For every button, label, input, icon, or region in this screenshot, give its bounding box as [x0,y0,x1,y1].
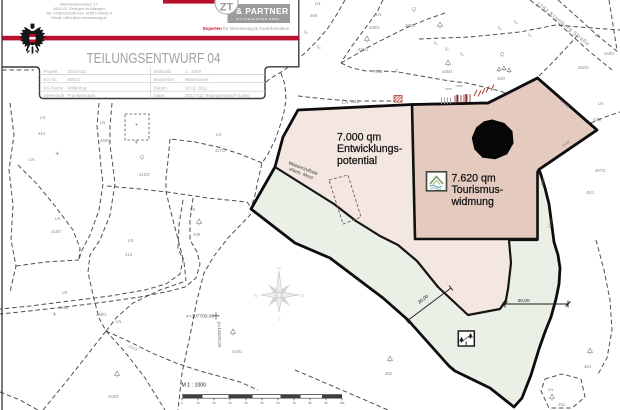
svg-text:W: W [253,293,258,298]
svg-text:N: N [277,266,280,271]
svg-text:60: 60 [276,401,280,405]
svg-text:448/2: 448/2 [100,138,111,143]
svg-text:LN: LN [116,319,121,324]
svg-text:LN: LN [62,290,67,295]
svg-text:KG Nr.: KG Nr. [44,77,58,82]
svg-text:443/1: 443/1 [232,349,243,354]
svg-text:potential: potential [337,155,377,167]
svg-text:LN: LN [595,33,600,38]
svg-text:Frankenmarkt: Frankenmarkt [68,93,97,98]
svg-text:445/2: 445/2 [358,47,369,52]
svg-text:452: 452 [385,371,393,376]
svg-text:418/7: 418/7 [51,229,62,234]
svg-text:452/3: 452/3 [578,65,589,70]
svg-text:468/4: 468/4 [405,23,416,28]
svg-text:ZT: ZT [220,2,234,14]
svg-text:ZIVILTECHNIKER GMBH: ZIVILTECHNIKER GMBH [236,17,280,21]
svg-text:1 : 1000: 1 : 1000 [185,69,202,74]
svg-text:y=12100,00: y=12100,00 [216,321,222,348]
svg-text:LN: LN [598,101,603,106]
svg-text:Datei: Datei [154,93,165,98]
svg-text:445/4: 445/4 [442,69,453,74]
svg-text:452: 452 [558,402,566,407]
svg-text:7.000 qm: 7.000 qm [337,132,381,144]
svg-text:& PARTNER: & PARTNER [236,6,289,16]
svg-text:LN: LN [29,157,34,162]
svg-text:O: O [301,293,305,298]
svg-text:LN: LN [128,238,133,243]
svg-text:Email: office@zt-vermessung.at: Email: office@zt-vermessung.at [52,15,108,20]
svg-text:414: 414 [38,131,46,136]
svg-text:448/1: 448/1 [604,51,615,56]
svg-text:LN 446: LN 446 [342,99,360,106]
svg-text:LN: LN [548,387,553,392]
svg-text:2989: 2989 [456,84,463,88]
svg-text:LN: LN [190,207,195,212]
svg-text:Bearbeiter: Bearbeiter [154,77,175,82]
svg-text:45/1: 45/1 [586,190,595,195]
svg-text:Projekt: Projekt [44,69,59,74]
svg-text:LN: LN [40,115,45,120]
svg-text:x=307700.00: x=307700.00 [185,314,214,320]
svg-text:43/2: 43/2 [593,117,602,122]
svg-text:02.02.2011: 02.02.2011 [185,86,208,91]
svg-text:7.620 qm: 7.620 qm [452,173,496,185]
svg-text:Maßstab: Maßstab [154,69,172,74]
svg-text:Experten für Vermessung & Geoi: Experten für Vermessung & Geoinformation [203,26,290,31]
svg-text:2988: 2988 [445,87,452,91]
svg-text:90: 90 [324,401,328,405]
svg-text:Tourismus-: Tourismus- [452,184,504,196]
svg-text:LN: LN [216,132,221,137]
svg-text:80: 80 [308,401,312,405]
svg-text:S: S [277,317,280,322]
svg-text:412/3: 412/3 [139,172,150,177]
svg-text:Q: Q [500,52,504,58]
svg-text:30,00: 30,00 [517,298,529,304]
svg-text:2012-011: 2012-011 [68,69,87,74]
svg-text:70: 70 [292,401,296,405]
svg-text:LN: LN [315,1,320,6]
svg-text:LN: LN [100,120,105,125]
svg-text:KG Name: KG Name [44,86,64,91]
svg-text:30: 30 [228,401,232,405]
svg-text:443/3: 443/3 [108,394,119,399]
svg-text:Gemeinde: Gemeinde [44,93,65,98]
svg-text:467/3: 467/3 [595,168,606,173]
svg-text:469: 469 [310,13,318,18]
svg-text:448/3: 448/3 [369,25,380,30]
svg-text:62,05: 62,05 [548,219,553,228]
svg-text:20: 20 [212,401,216,405]
svg-text:50022: 50022 [68,77,81,82]
svg-text:TEILUNGSENTWURF 04: TEILUNGSENTWURF 04 [87,51,221,67]
svg-text:449: 449 [193,232,201,237]
svg-text:widmung: widmung [451,196,495,208]
svg-text:10: 10 [196,401,200,405]
svg-text:449/3: 449/3 [96,312,107,317]
svg-text:413: 413 [125,252,133,257]
svg-text:LN: LN [55,216,60,221]
svg-text:Q: Q [412,7,416,13]
svg-text:LN: LN [376,12,381,17]
svg-text:50: 50 [260,401,264,405]
svg-text:417/2: 417/2 [215,148,226,153]
svg-text:M 1 : 1000: M 1 : 1000 [182,383,207,389]
svg-text:100: 100 [340,401,345,405]
svg-text:Datum: Datum [154,86,168,91]
svg-text:2012-011 Teilungsentwurf 4.dwg: 2012-011 Teilungsentwurf 4.dwg [185,93,250,98]
svg-text:444/2: 444/2 [58,305,69,310]
svg-text:45/2: 45/2 [497,76,506,81]
svg-text:40: 40 [244,401,248,405]
svg-text:454: 454 [584,364,592,369]
svg-text:7011: 7011 [373,69,383,74]
svg-text:Q: Q [140,155,144,161]
svg-text:Wawrousek: Wawrousek [185,77,209,82]
svg-text:Wildering: Wildering [68,86,87,91]
svg-text:Entwicklungs-: Entwicklungs- [337,143,403,155]
